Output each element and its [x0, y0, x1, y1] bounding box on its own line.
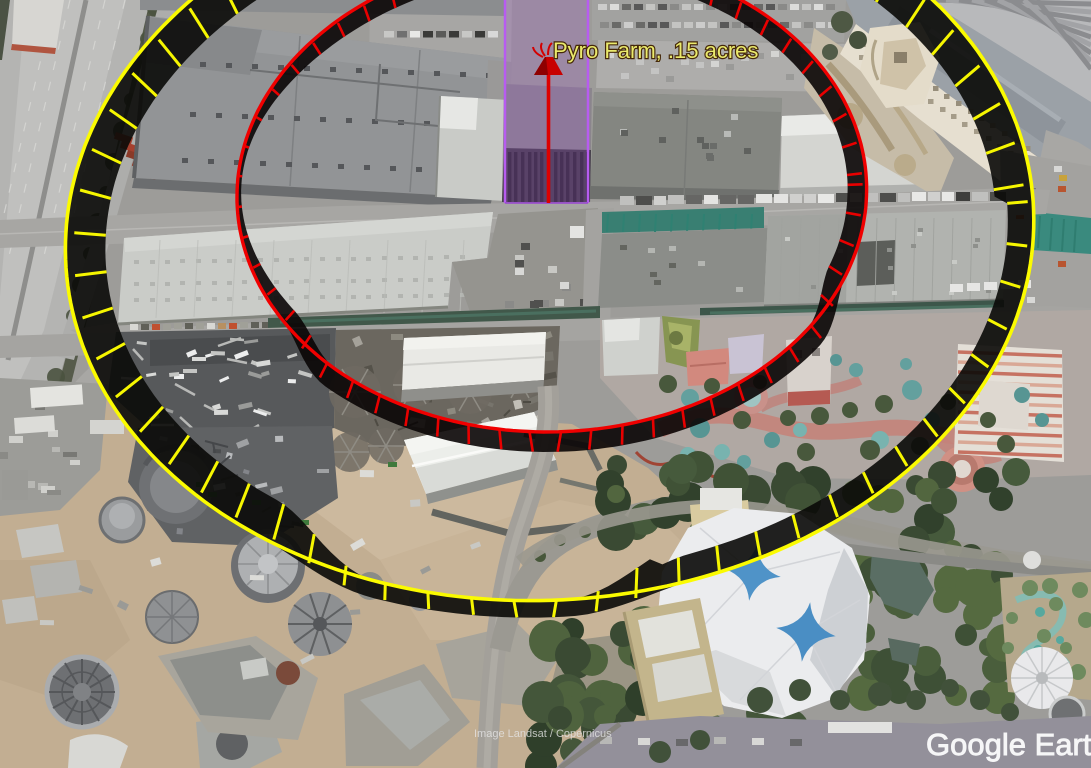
svg-text:Image Landsat / Copernicus: Image Landsat / Copernicus	[474, 728, 612, 740]
svg-text:Google Earth: Google Earth	[926, 727, 1091, 762]
svg-text:Pyro Farm, .15 acres: Pyro Farm, .15 acres	[553, 38, 758, 63]
